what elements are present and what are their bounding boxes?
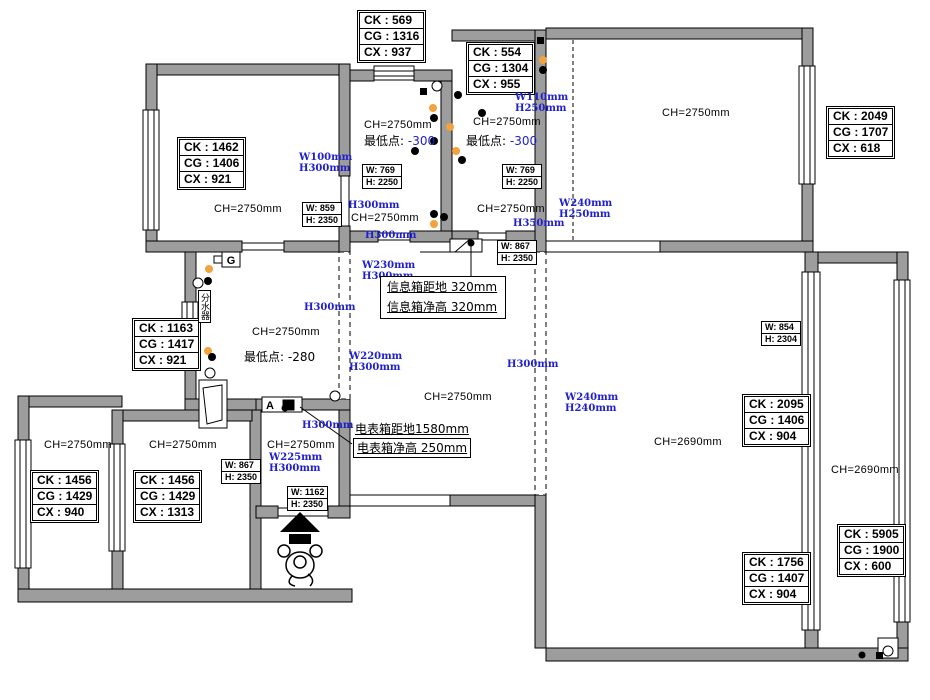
lowest-point-value: -300 [510,134,537,148]
door-size-box: W: 769 H: 2250 [362,164,402,189]
door-height: H: 2250 [362,176,402,189]
door-size-box: W: 867 H: 2350 [221,459,261,484]
ceiling-height-label: CH=2690mm [831,464,899,476]
ceiling-height-label: CH=2750mm [44,439,112,451]
dim-note: W225mm H300mm [269,452,322,474]
pipe-riser-icon [193,278,203,288]
door-size-box: W: 854 H: 2304 [761,321,801,346]
gas-meter-label: G [227,255,236,267]
measure-line: CG : 1316 [359,28,424,45]
lowest-point-note: 最低点: -280 [244,348,315,365]
measure-line: CX : 1313 [135,504,200,521]
door-height: H: 2304 [761,333,801,346]
lowest-point-value: -300 [408,134,435,148]
dim-line: H300mm [269,463,322,474]
measure-line: CG : 1707 [828,124,893,141]
dim-line: H300mm [349,362,402,373]
lowest-point-label: 最低点: [466,134,506,148]
dim-note: H300mm [302,420,353,431]
window-measure-box: CK : 1756 CG : 1407 CX : 904 [742,552,811,605]
ceiling-height-label: CH=2750mm [477,203,545,215]
ceiling-height-label: CH=2750mm [267,439,335,451]
dim-line: W220mm [349,351,402,362]
dim-note: H300mm [304,302,355,313]
dim-line: H300mm [299,163,352,174]
measure-line: CK : 1163 [134,320,199,337]
pipe-riser-icon [432,81,442,91]
pipe-riser-icon [330,391,340,401]
pipe-riser-icon [205,368,215,378]
measure-line: CK : 554 [468,44,533,61]
dim-line: W100mm [299,152,352,163]
dim-note: W110mm H250mm [515,92,568,114]
gas-valve-icon [214,256,222,263]
ceiling-height-label: CH=2750mm [424,391,492,403]
ceiling-height-label: CH=2750mm [473,116,541,128]
measure-line: CX : 921 [134,352,199,369]
dim-note: H350mm [513,218,564,229]
window-measure-box: CK : 1462 CG : 1406 CX : 921 [177,137,246,190]
meter-box-offset: 电表箱距地1580mm [355,420,469,437]
ceiling-height-label: CH=2750mm [252,326,320,338]
dim-line: H250mm [515,103,568,114]
info-box-fixture [450,239,482,252]
dim-note: H300mm [507,359,558,370]
dim-line: W110mm [515,92,568,103]
measure-line: CG : 1417 [134,336,199,353]
dim-line: W240mm [565,392,618,403]
north-arrow-icon [278,512,322,586]
measure-line: CK : 569 [359,12,424,29]
measure-line: CK : 1462 [179,139,244,156]
dim-note: H300mm [348,200,399,211]
ceiling-height-label: CH=2750mm [662,107,730,119]
meter-box-clear: 电表箱净高 250mm [353,438,471,458]
sink-fixture [199,380,227,428]
door-size-box: W: 859 H: 2350 [302,202,342,227]
electric-panel-label: A [266,400,274,412]
dim-line: W230mm [362,260,415,271]
dim-line: W240mm [559,198,612,209]
door-width: W: 1162 [287,486,328,499]
door-height: H: 2350 [302,214,342,227]
door-height: H: 2350 [221,471,261,484]
dim-note: W240mm H240mm [565,392,618,414]
dim-note: W220mm H300mm [349,351,402,373]
measure-line: CX : 940 [32,504,97,521]
measure-line: CG : 1406 [179,155,244,172]
lowest-point-note: 最低点: -300 [364,132,435,149]
door-height: H: 2250 [502,176,542,189]
floor-plan-canvas: G A [0,0,930,700]
dim-note: W240mm H250mm [559,198,612,220]
measure-line: CG : 1304 [468,60,533,77]
measure-line: CK : 1456 [32,472,97,489]
ceiling-height-label: CH=2750mm [351,212,419,224]
measure-line: CX : 955 [468,76,533,93]
window-measure-box: CK : 569 CG : 1316 CX : 937 [357,10,426,63]
measure-line: CX : 937 [359,44,424,61]
measure-line: CG : 1406 [744,412,809,429]
window-measure-box: CK : 1456 CG : 1429 CX : 940 [30,470,99,523]
measure-line: CK : 5905 [839,526,904,543]
measure-line: CG : 1900 [839,542,904,559]
window-measure-box: CK : 2095 CG : 1406 CX : 904 [742,394,811,447]
window-measure-box: CK : 5905 CG : 1900 CX : 600 [837,524,906,577]
dim-note: W100mm H300mm [299,152,352,174]
info-box-note: 信息箱距地 320mm 信息箱净高 320mm [380,276,506,319]
measure-line: CX : 921 [179,171,244,188]
measure-line: CG : 1429 [135,488,200,505]
measure-line: CX : 904 [744,428,809,445]
dim-note: H300mm [365,230,416,241]
ceiling-height-label: CH=2750mm [364,119,432,131]
measure-line: CX : 600 [839,558,904,575]
dim-line: W225mm [269,452,322,463]
measure-line: CX : 618 [828,140,893,157]
window-measure-box: CK : 1456 CG : 1429 CX : 1313 [133,470,202,523]
info-box-offset: 信息箱距地 320mm [387,278,497,295]
measure-line: CG : 1407 [744,570,809,587]
door-height: H: 2350 [497,252,537,265]
lowest-point-label: 最低点: [364,134,404,148]
door-size-box: W: 1162 H: 2350 [287,486,328,511]
window-measure-box: CK : 554 CG : 1304 CX : 955 [466,42,535,95]
dim-line: H250mm [559,209,612,220]
measure-line: CX : 904 [744,586,809,603]
window-measure-box: CK : 1163 CG : 1417 CX : 921 [132,318,201,371]
ceiling-height-label: CH=2690mm [654,436,722,448]
measure-line: CK : 2095 [744,396,809,413]
info-box-clear: 信息箱净高 320mm [387,298,497,315]
measure-line: CK : 1456 [135,472,200,489]
door-height: H: 2350 [287,498,328,511]
window-measure-box: CK : 2049 CG : 1707 CX : 618 [826,106,895,159]
measure-line: CK : 1756 [744,554,809,571]
lowest-point-note: 最低点: -300 [466,132,537,149]
ceiling-height-label: CH=2750mm [214,203,282,215]
measure-line: CG : 1429 [32,488,97,505]
door-size-box: W: 769 H: 2250 [502,164,542,189]
lowest-point-label: 最低点: [244,350,284,364]
ceiling-height-label: CH=2750mm [149,439,217,451]
measure-line: CK : 2049 [828,108,893,125]
door-size-box: W: 867 H: 2350 [497,240,537,265]
water-manifold-label: 分水器 [198,290,211,323]
dim-line: H240mm [565,403,618,414]
lowest-point-value: -280 [288,350,315,364]
